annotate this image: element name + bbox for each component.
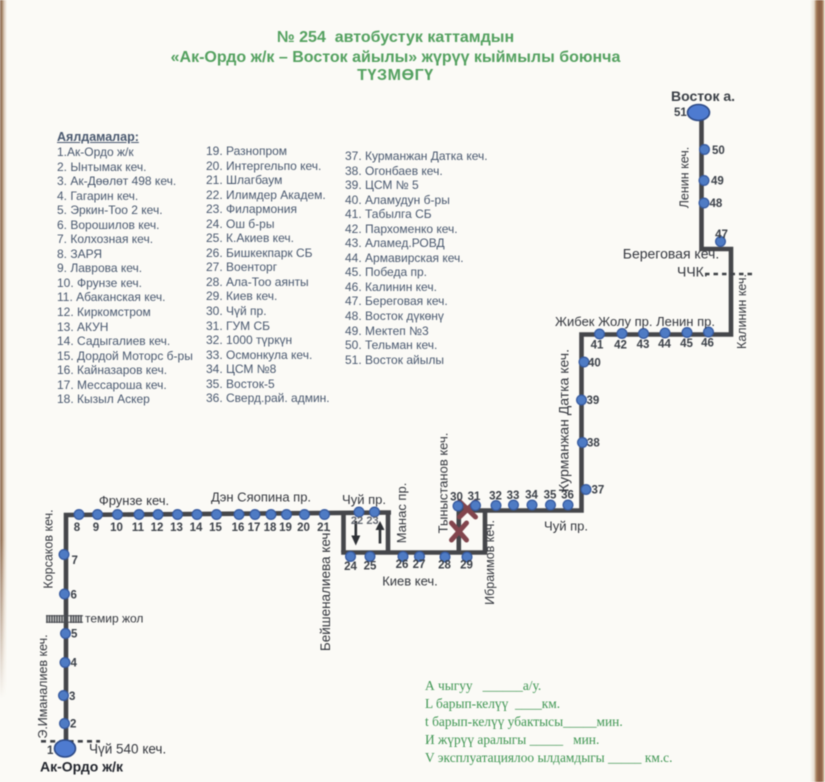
svg-text:9: 9 <box>93 522 99 534</box>
svg-text:ЧЧК.: ЧЧК. <box>677 264 708 280</box>
svg-text:темир жол: темир жол <box>85 612 143 626</box>
svg-text:4: 4 <box>71 658 78 670</box>
svg-text:34: 34 <box>525 490 538 502</box>
svg-text:31: 31 <box>468 491 481 503</box>
svg-text:3: 3 <box>69 691 75 703</box>
svg-text:Ак-Ордо ж/к: Ак-Ордо ж/к <box>40 759 124 775</box>
svg-text:42: 42 <box>614 340 627 352</box>
svg-text:44: 44 <box>658 339 671 351</box>
svg-text:13: 13 <box>170 522 183 534</box>
svg-text:47: 47 <box>715 229 728 241</box>
svg-text:5: 5 <box>71 629 78 641</box>
svg-text:20: 20 <box>297 522 310 534</box>
svg-text:26: 26 <box>396 559 409 571</box>
svg-text:Чуй пр.: Чуй пр. <box>544 519 588 534</box>
svg-text:27: 27 <box>413 559 426 571</box>
svg-text:12: 12 <box>151 522 164 534</box>
svg-text:37: 37 <box>592 485 605 497</box>
svg-text:Восток а.: Восток а. <box>671 88 735 104</box>
svg-text:1: 1 <box>47 745 54 757</box>
svg-text:28: 28 <box>438 560 451 572</box>
svg-text:8: 8 <box>74 522 81 534</box>
svg-text:46: 46 <box>701 338 714 350</box>
svg-text:41: 41 <box>591 340 604 352</box>
svg-text:Фрунзе кеч.: Фрунзе кеч. <box>99 493 169 508</box>
svg-text:24: 24 <box>344 561 357 573</box>
svg-text:39: 39 <box>587 395 600 407</box>
svg-text:Манас пр.: Манас пр. <box>394 483 409 544</box>
svg-text:Корсаков кеч.: Корсаков кеч. <box>42 509 56 588</box>
svg-text:Береговая кеч.: Береговая кеч. <box>623 246 719 262</box>
svg-text:29: 29 <box>460 560 473 572</box>
svg-text:25: 25 <box>364 561 377 573</box>
svg-text:Чуй пр.: Чуй пр. <box>342 492 386 507</box>
svg-text:30: 30 <box>450 492 463 504</box>
svg-text:15: 15 <box>209 522 222 534</box>
svg-text:17: 17 <box>248 522 261 534</box>
svg-text:51: 51 <box>674 107 687 119</box>
svg-text:32: 32 <box>489 491 502 503</box>
svg-text:Э.Иманалиев кеч.: Э.Иманалиев кеч. <box>36 634 50 738</box>
svg-text:38: 38 <box>587 438 600 450</box>
svg-text:Бейшеналиева кеч.: Бейшеналиева кеч. <box>318 529 333 651</box>
svg-text:11: 11 <box>132 522 145 534</box>
svg-text:Дэн Сяопина пр.: Дэн Сяопина пр. <box>211 490 311 505</box>
svg-text:Калинин кеч.: Калинин кеч. <box>735 274 749 349</box>
svg-text:50: 50 <box>712 145 725 157</box>
svg-text:33: 33 <box>507 490 520 502</box>
svg-text:Тыныстанов кеч.: Тыныстанов кеч. <box>436 433 451 534</box>
svg-text:49: 49 <box>711 176 724 188</box>
svg-text:Жибек Жолу пр. Ленин пр.: Жибек Жолу пр. Ленин пр. <box>555 314 715 329</box>
svg-text:Ибраимов кеч.: Ибраимов кеч. <box>483 520 497 605</box>
svg-text:40: 40 <box>588 358 601 370</box>
svg-text:16: 16 <box>232 522 245 534</box>
svg-text:43: 43 <box>637 339 650 351</box>
svg-text:2: 2 <box>70 719 76 731</box>
svg-text:6: 6 <box>71 590 77 602</box>
svg-text:Ленин кеч.: Ленин кеч. <box>678 147 692 209</box>
svg-text:7: 7 <box>72 555 78 567</box>
svg-text:22: 22 <box>351 515 363 527</box>
svg-text:48: 48 <box>710 198 723 210</box>
svg-text:14: 14 <box>190 522 203 534</box>
svg-text:45: 45 <box>680 338 693 350</box>
svg-text:Курманжан Датка кеч.: Курманжан Датка кеч. <box>556 349 572 492</box>
svg-text:23: 23 <box>366 515 378 527</box>
svg-text:Чүй 540 кеч.: Чүй 540 кеч. <box>89 742 166 757</box>
svg-text:19: 19 <box>279 522 292 534</box>
svg-text:10: 10 <box>110 522 123 534</box>
svg-text:Киев кеч.: Киев кеч. <box>382 574 438 589</box>
svg-text:18: 18 <box>264 522 277 534</box>
